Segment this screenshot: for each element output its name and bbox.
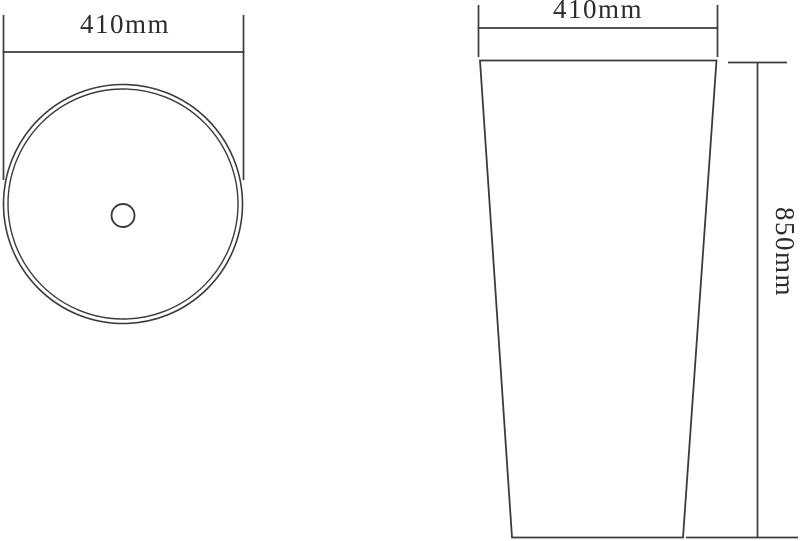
front-view-width-label: 410mm [518,0,678,25]
front-view-group [478,5,799,538]
top-view-diameter-label: 410mm [45,9,205,40]
technical-drawing-canvas: 410mm 410mm 850mm [0,0,800,541]
top-view-group [3,15,245,324]
drain-hole-circle [112,204,135,227]
pedestal-outline [480,61,717,538]
drawing-svg [0,0,800,541]
front-view-height-label: 850mm [771,172,799,332]
